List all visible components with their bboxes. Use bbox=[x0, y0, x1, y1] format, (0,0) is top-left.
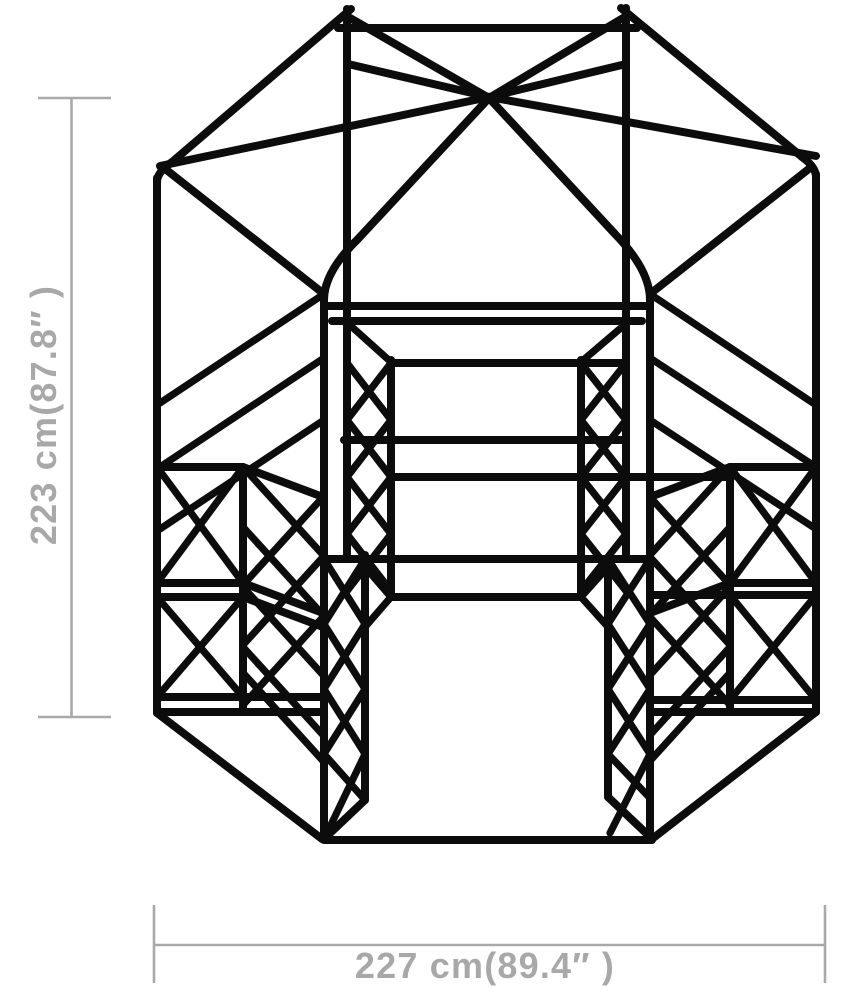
svg-text:223 cm(87.8″ ): 223 cm(87.8″ ) bbox=[23, 285, 64, 545]
svg-text:227 cm(89.4″ ): 227 cm(89.4″ ) bbox=[355, 945, 615, 986]
